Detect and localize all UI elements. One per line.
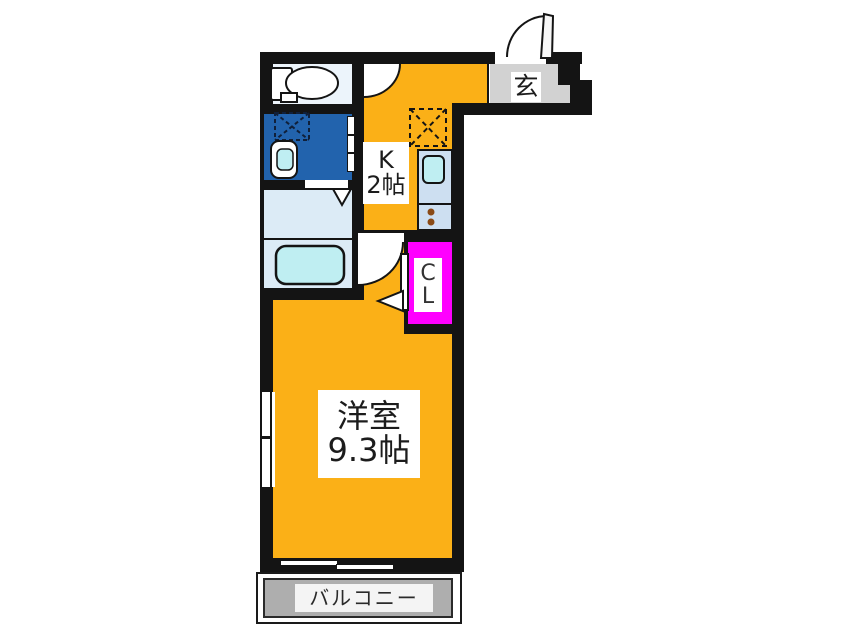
sliding-window-panel2 bbox=[336, 564, 394, 570]
shower-room-door-tick2 bbox=[347, 152, 355, 154]
entrance-door-swing-icon bbox=[506, 15, 547, 57]
toilet-room-floor bbox=[272, 64, 352, 106]
laundry-area-floor bbox=[264, 190, 352, 238]
room-size-text: 9.3帖 bbox=[328, 434, 411, 468]
entrance-label: 玄 bbox=[511, 72, 541, 102]
shower-room-door-tick1 bbox=[347, 134, 355, 136]
closet-label-c: C bbox=[420, 262, 435, 285]
wall-toilet-shower-divider bbox=[260, 104, 364, 114]
closet-door-icon bbox=[400, 253, 409, 311]
window-left-tick bbox=[260, 436, 272, 439]
balcony-label: バルコニー bbox=[295, 584, 433, 612]
entrance-label-text: 玄 bbox=[513, 74, 538, 100]
sliding-window-icon bbox=[280, 560, 338, 566]
room-door-opening bbox=[358, 233, 404, 242]
kitchen-size-text: 2帖 bbox=[366, 173, 405, 198]
line-laundry-bath bbox=[264, 238, 352, 240]
wall-bath-bottom bbox=[260, 288, 364, 300]
entrance-hall-floor bbox=[454, 62, 487, 103]
closet-label-l: L bbox=[422, 285, 434, 308]
balcony-label-text: バルコニー bbox=[309, 588, 419, 609]
wall-genkan-right-lower bbox=[570, 80, 592, 115]
line-kitchen-genkan bbox=[487, 62, 489, 103]
window-left-line2 bbox=[270, 392, 272, 487]
wall-left-thin bbox=[260, 114, 264, 300]
room-label: 洋室 9.3帖 bbox=[318, 390, 420, 478]
room-name-text: 洋室 bbox=[337, 400, 401, 434]
window-left-line1 bbox=[260, 392, 262, 487]
shower-room-floor bbox=[264, 114, 352, 180]
kitchen-label: K 2帖 bbox=[363, 142, 409, 204]
wall-right bbox=[452, 103, 464, 572]
bathroom-floor bbox=[264, 240, 352, 288]
floorplan-canvas: 玄 K 2帖 C L 洋室 9.3帖 バルコニー bbox=[0, 0, 846, 634]
wall-top-left bbox=[260, 52, 495, 64]
kitchen-type-text: K bbox=[378, 148, 394, 173]
wall-closet-bottom bbox=[404, 324, 464, 334]
closet-label: C L bbox=[414, 258, 442, 312]
laundry-door-opening bbox=[305, 180, 348, 190]
shower-room-door bbox=[347, 116, 355, 172]
